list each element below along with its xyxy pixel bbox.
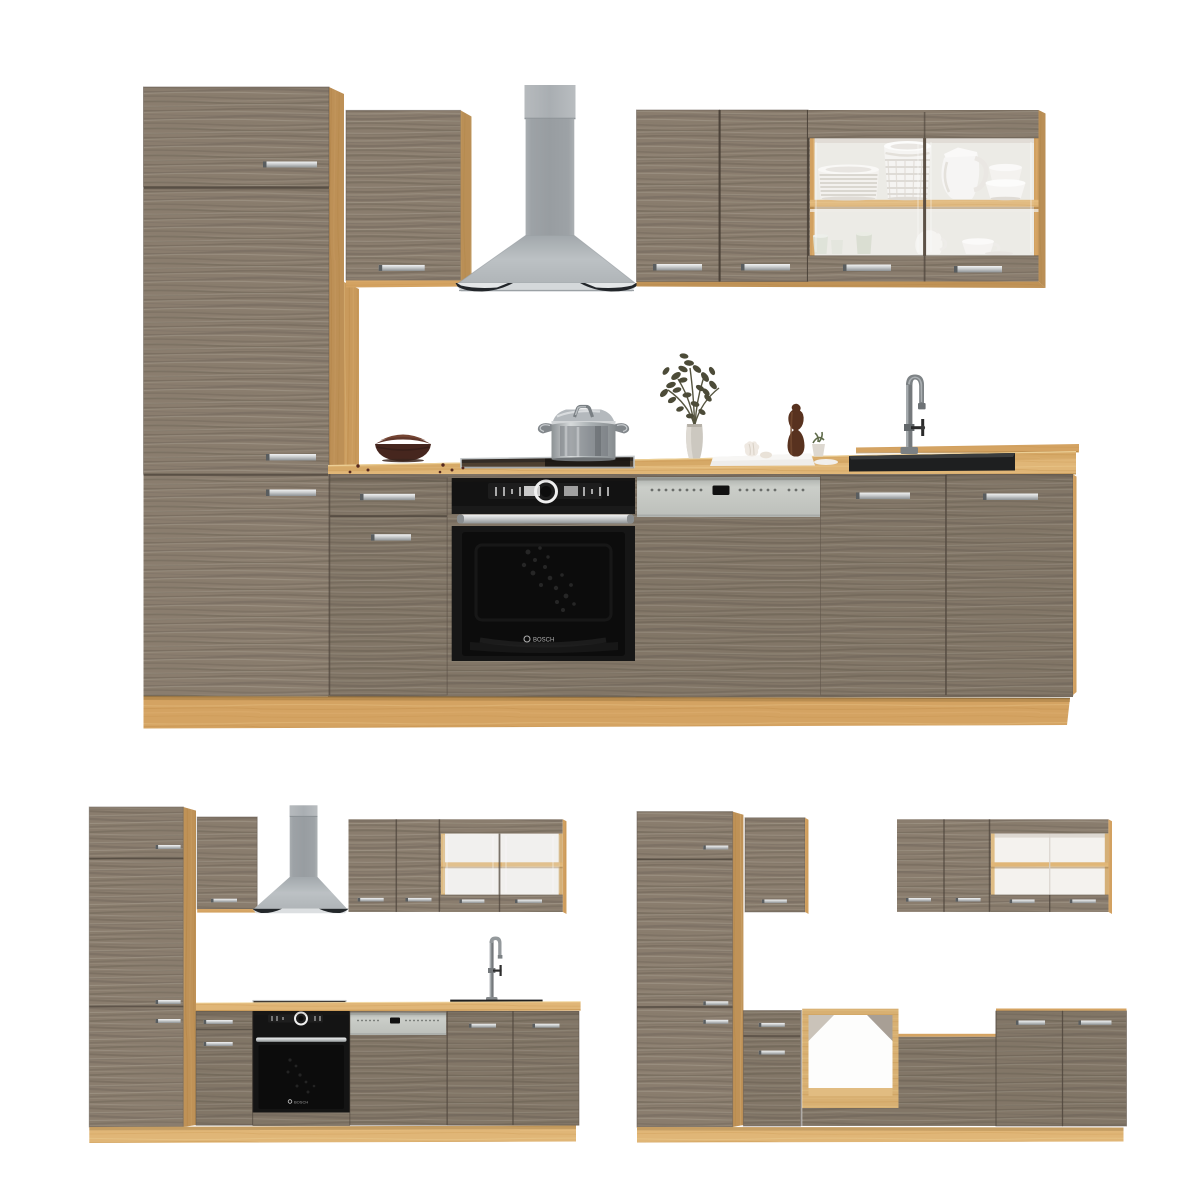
svg-text:BOSCH: BOSCH: [533, 638, 554, 644]
svg-text:BOSCH: BOSCH: [294, 1100, 308, 1105]
